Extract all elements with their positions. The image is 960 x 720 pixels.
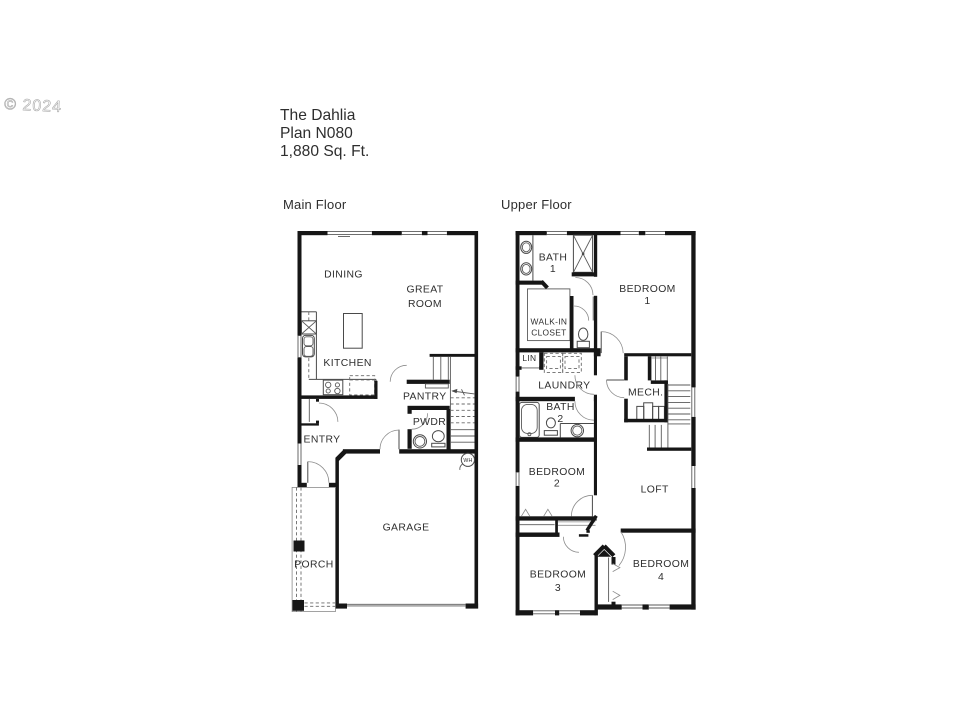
svg-text:WALK-IN: WALK-IN	[531, 316, 568, 326]
svg-text:GARAGE: GARAGE	[383, 523, 430, 534]
svg-text:DINING: DINING	[324, 269, 363, 280]
svg-text:BATH: BATH	[546, 402, 575, 413]
svg-text:BEDROOM: BEDROOM	[529, 467, 586, 478]
svg-text:PANTRY: PANTRY	[403, 392, 447, 403]
svg-text:© 2024: © 2024	[4, 96, 63, 116]
svg-text:LOFT: LOFT	[641, 485, 669, 496]
svg-text:1,880 Sq. Ft.: 1,880 Sq. Ft.	[280, 143, 369, 160]
svg-text:BATH: BATH	[539, 252, 568, 263]
svg-text:KITCHEN: KITCHEN	[323, 358, 371, 369]
svg-text:ENTRY: ENTRY	[303, 434, 340, 445]
svg-text:BEDROOM: BEDROOM	[619, 284, 676, 295]
svg-text:BEDROOM: BEDROOM	[633, 559, 690, 570]
svg-text:CLOSET: CLOSET	[531, 327, 566, 337]
svg-text:PORCH: PORCH	[294, 560, 334, 571]
svg-text:BEDROOM: BEDROOM	[530, 570, 587, 581]
svg-text:2: 2	[554, 479, 560, 490]
svg-text:WH: WH	[463, 458, 472, 464]
svg-text:3: 3	[555, 583, 561, 594]
svg-text:1: 1	[644, 296, 650, 307]
svg-text:Plan N080: Plan N080	[280, 125, 353, 142]
svg-text:Upper Floor: Upper Floor	[501, 197, 572, 212]
svg-text:1: 1	[550, 264, 556, 275]
svg-text:ROOM: ROOM	[408, 299, 442, 310]
svg-text:LAUNDRY: LAUNDRY	[538, 381, 590, 392]
svg-text:4: 4	[658, 572, 664, 583]
svg-text:The Dahlia: The Dahlia	[280, 107, 356, 124]
svg-text:MECH.: MECH.	[628, 387, 663, 398]
svg-text:Main Floor: Main Floor	[283, 197, 347, 212]
svg-text:PWDR: PWDR	[413, 417, 446, 428]
svg-text:GREAT: GREAT	[406, 285, 443, 296]
svg-text:LIN: LIN	[522, 353, 536, 363]
